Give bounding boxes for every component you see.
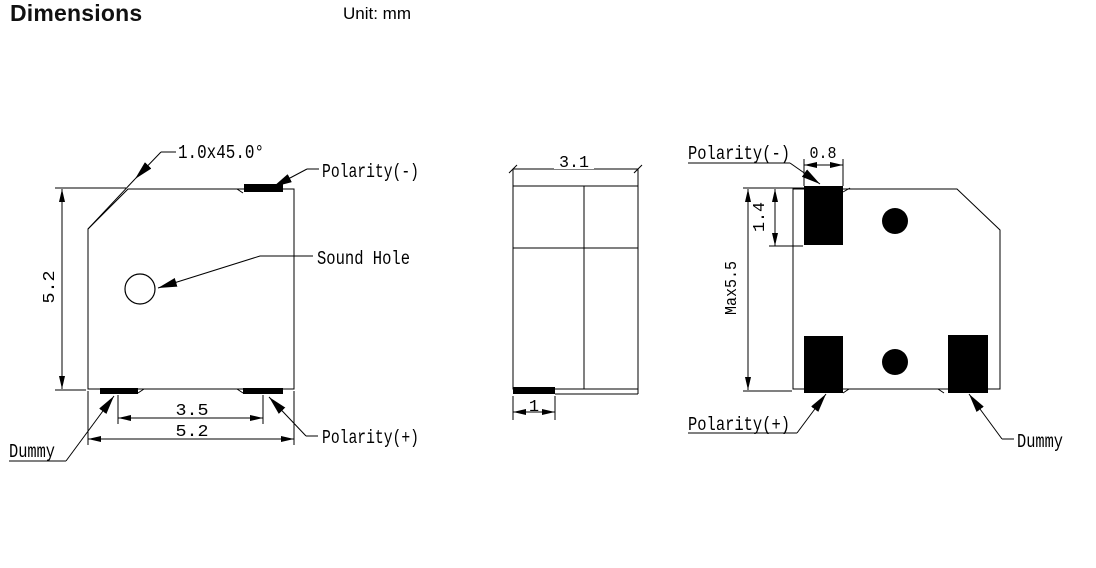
side-width-dim-text: 3.1 [559,154,589,173]
top-view-top-notch [237,189,243,193]
top-dummy-label: Dummy [9,441,55,463]
top-view-bottom-notch-left [138,389,144,393]
bottom-view-dot-lower [882,349,908,375]
pad-width-dim-text: 0.8 [810,145,837,164]
dimension-drawing: 1.0x45.0° Polarity(-) Sound Hole Dummy P… [0,0,1096,568]
chamfer-leader-arrow-segment [135,152,161,179]
pitch-dim-text: 3.5 [176,402,209,421]
bottom-view-positive-pad [804,336,843,393]
top-view-dummy-pad [100,388,138,394]
side-pad-dim-text: 1 [529,398,539,417]
bottom-dummy-leader [969,394,1002,439]
side-view-pad [513,387,555,394]
width-dim-text: 5.2 [176,423,209,442]
bottom-view-negative-pad [804,186,843,245]
top-view-bottom-notch-right [237,389,243,393]
top-polarity-neg-label: Polarity(-) [322,161,419,183]
chamfer-leader-tail [88,179,135,229]
height-dim-text: 5.2 [41,271,60,304]
side-view-body-outline [513,169,638,389]
bottom-view-notch-right [938,389,944,393]
top-view: 1.0x45.0° Polarity(-) Sound Hole Dummy P… [9,142,419,463]
pad-height-dim-text: 1.4 [751,202,770,232]
bottom-polarity-neg-leader [790,163,820,184]
top-polarity-pos-label: Polarity(+) [322,427,419,449]
bottom-dummy-label: Dummy [1017,431,1063,453]
dimensions-page: Dimensions Unit: mm [0,0,1096,568]
top-polarity-pos-leader [269,397,306,436]
top-polarity-neg-leader [273,169,307,187]
max-height-dim-text: Max5.5 [723,261,742,315]
top-dummy-leader [66,396,114,461]
sound-hole-circle [125,274,155,304]
sound-hole-leader [158,256,313,288]
top-view-positive-pad [243,388,283,394]
bottom-view-notch-left [843,389,849,393]
bottom-view-dot-upper [882,208,908,234]
bottom-view: Polarity(-) 0.8 Max5.5 1.4 Polarity(+) [688,143,1063,453]
sound-hole-label: Sound Hole [317,248,410,270]
side-view: 3.1 1 [509,154,642,420]
chamfer-label: 1.0x45.0° [178,142,264,164]
bottom-view-dummy-pad [948,335,988,393]
top-view-body-outline [88,189,294,389]
bottom-polarity-neg-label: Polarity(-) [688,143,790,165]
bottom-polarity-pos-leader [797,394,826,433]
